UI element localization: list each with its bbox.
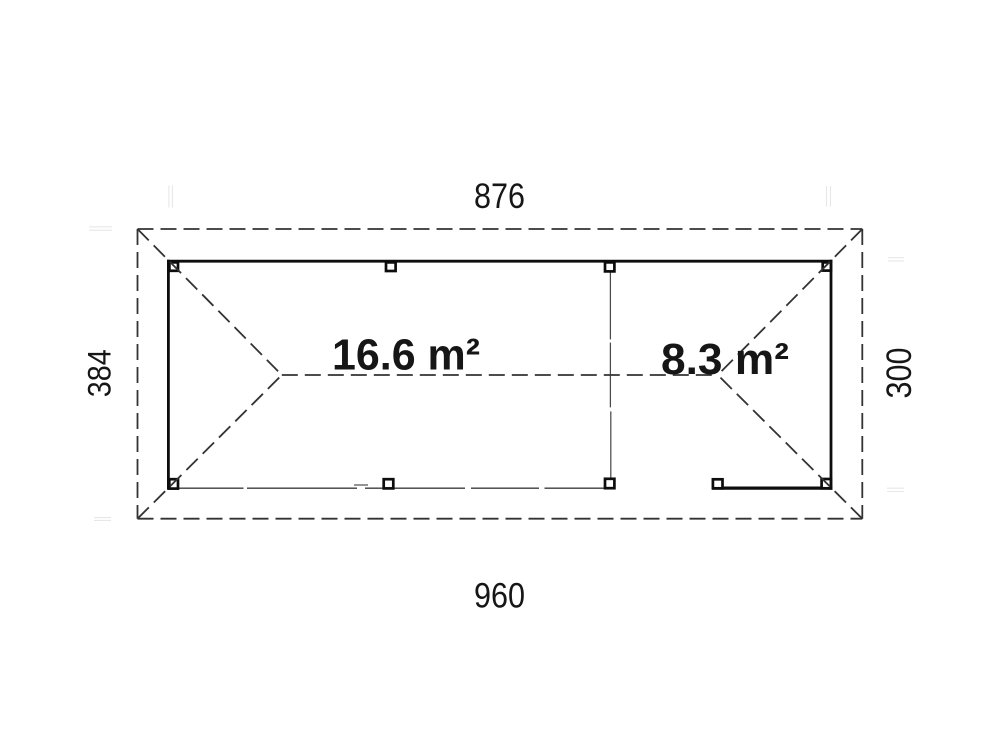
svg-text:384: 384 xyxy=(81,349,117,397)
svg-text:960: 960 xyxy=(474,577,525,616)
svg-text:876: 876 xyxy=(474,177,525,216)
svg-text:16.6 m²: 16.6 m² xyxy=(332,331,480,380)
svg-text:8.3 m²: 8.3 m² xyxy=(661,335,789,384)
svg-text:300: 300 xyxy=(879,348,919,399)
